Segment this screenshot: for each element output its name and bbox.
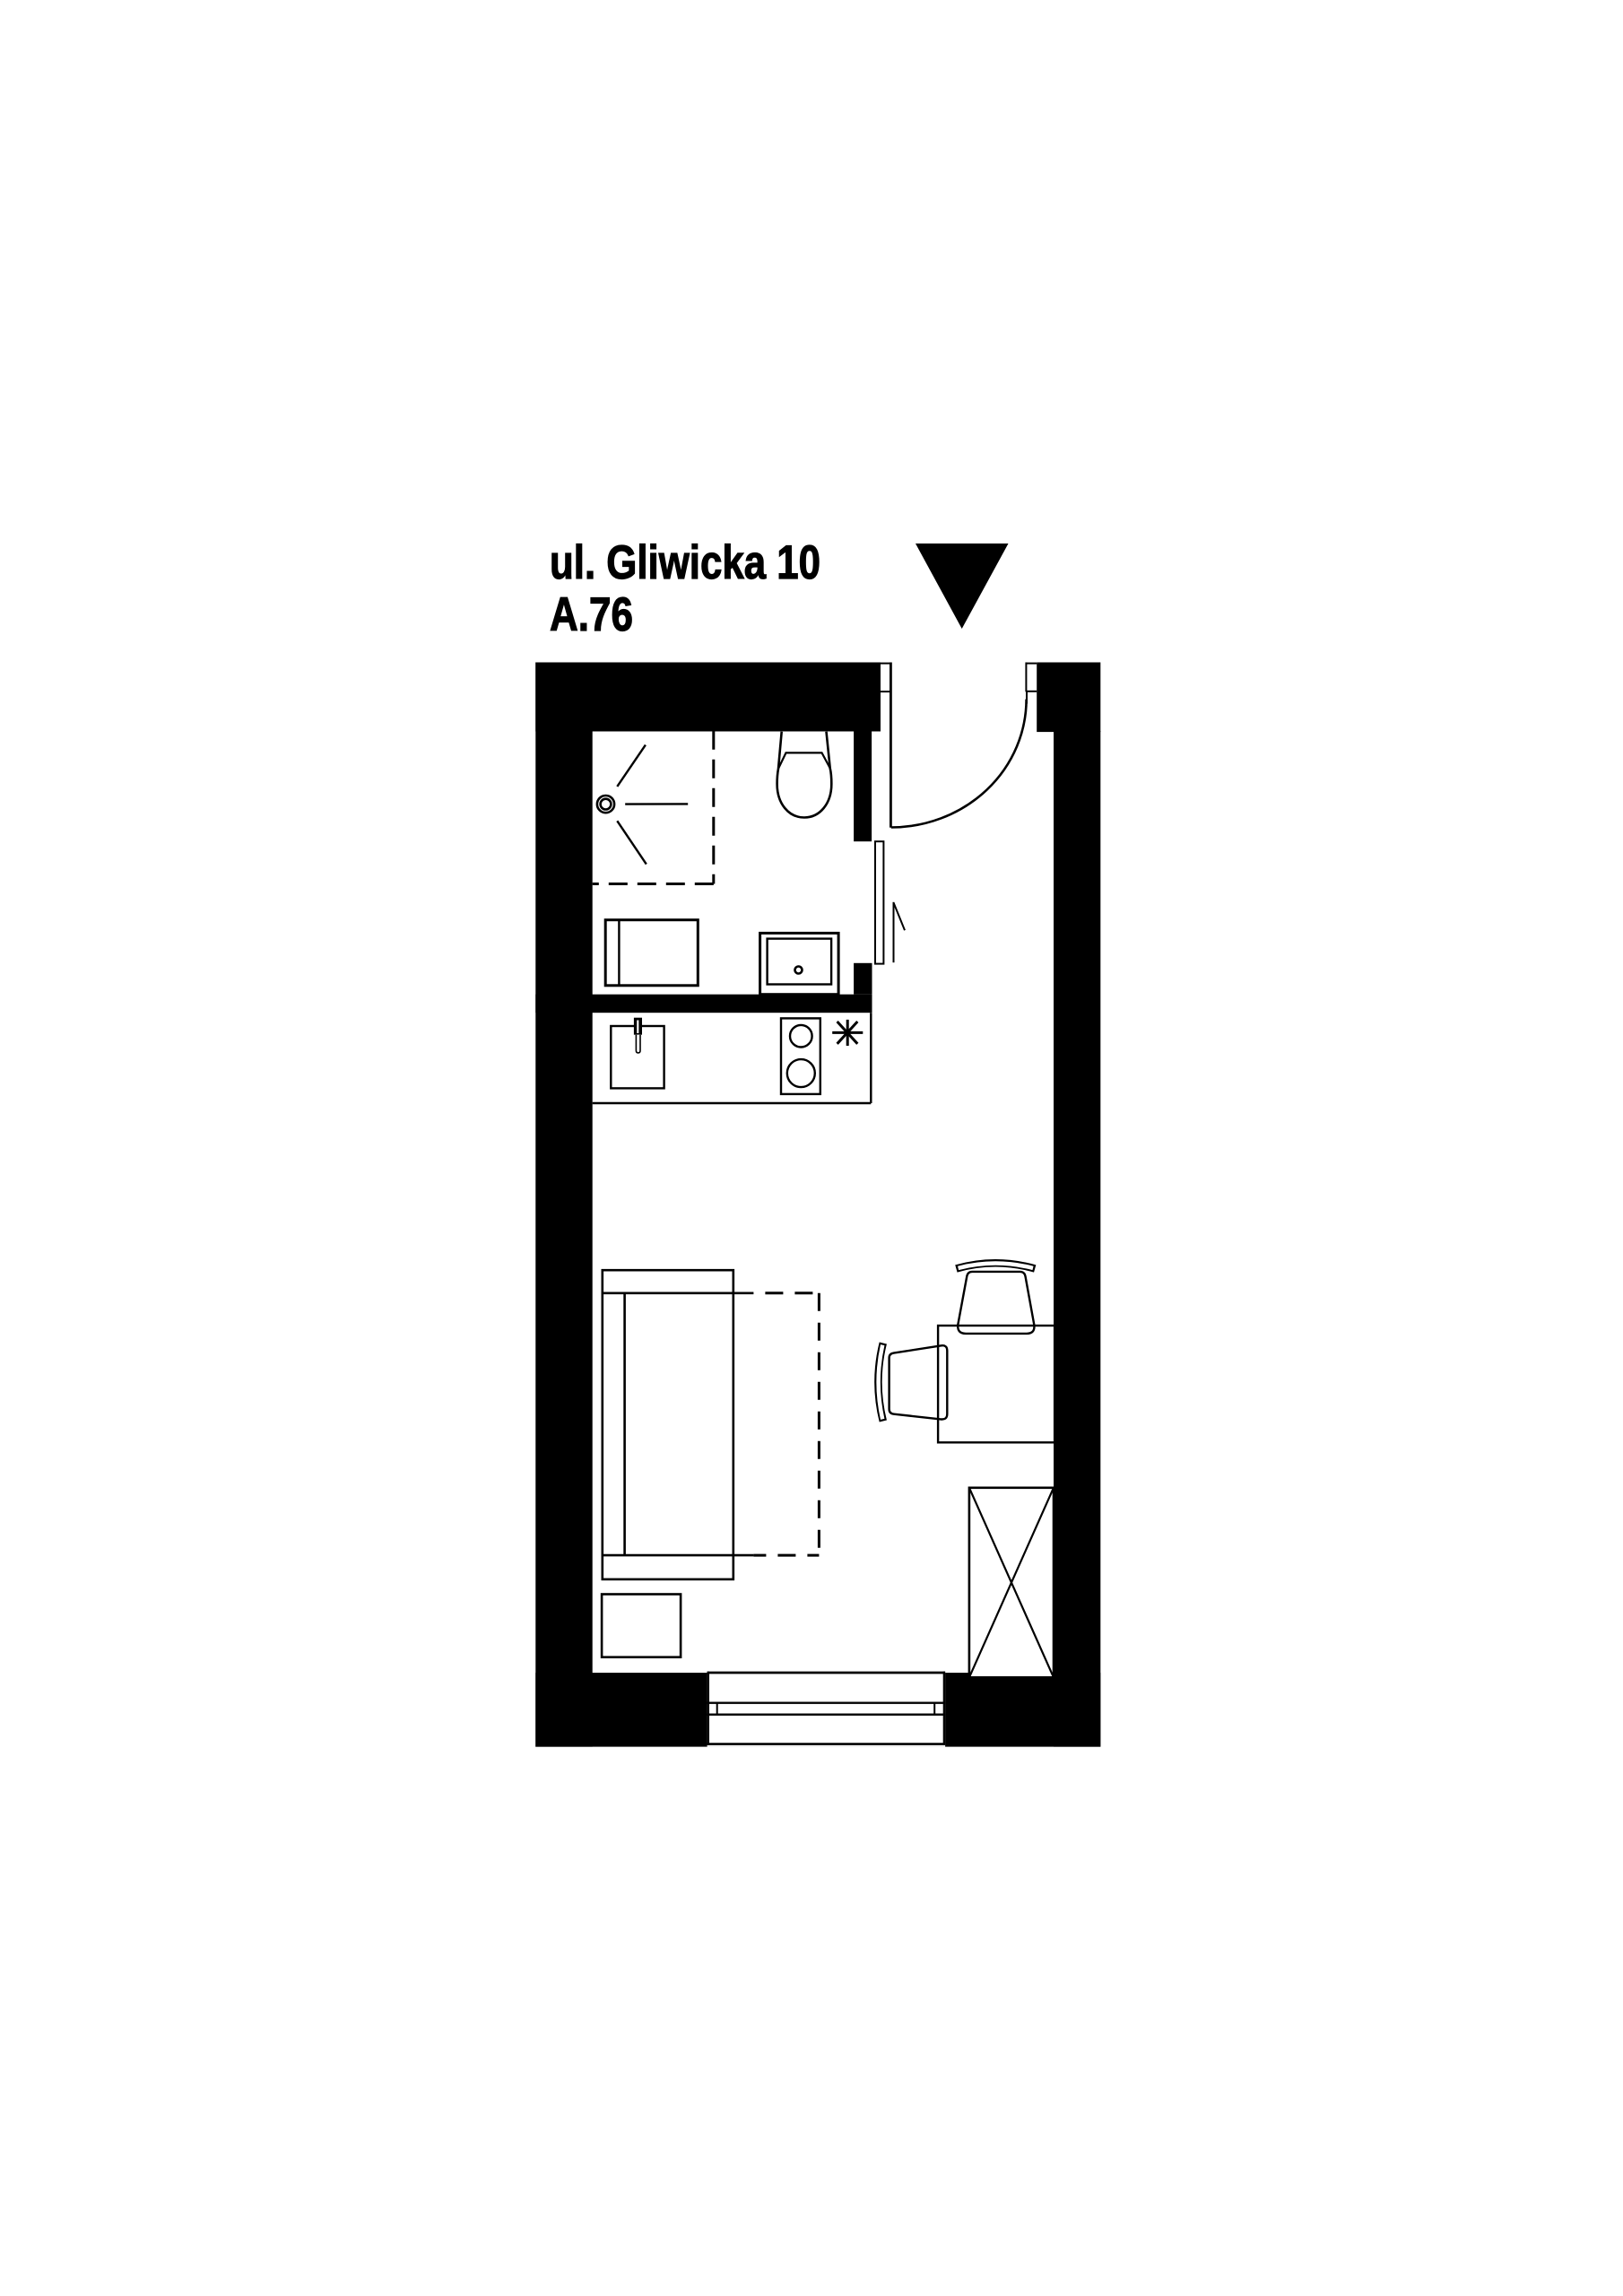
svg-text:A.76: A.76 bbox=[550, 588, 633, 641]
svg-text:ul. Gliwicka 10: ul. Gliwicka 10 bbox=[550, 536, 820, 589]
